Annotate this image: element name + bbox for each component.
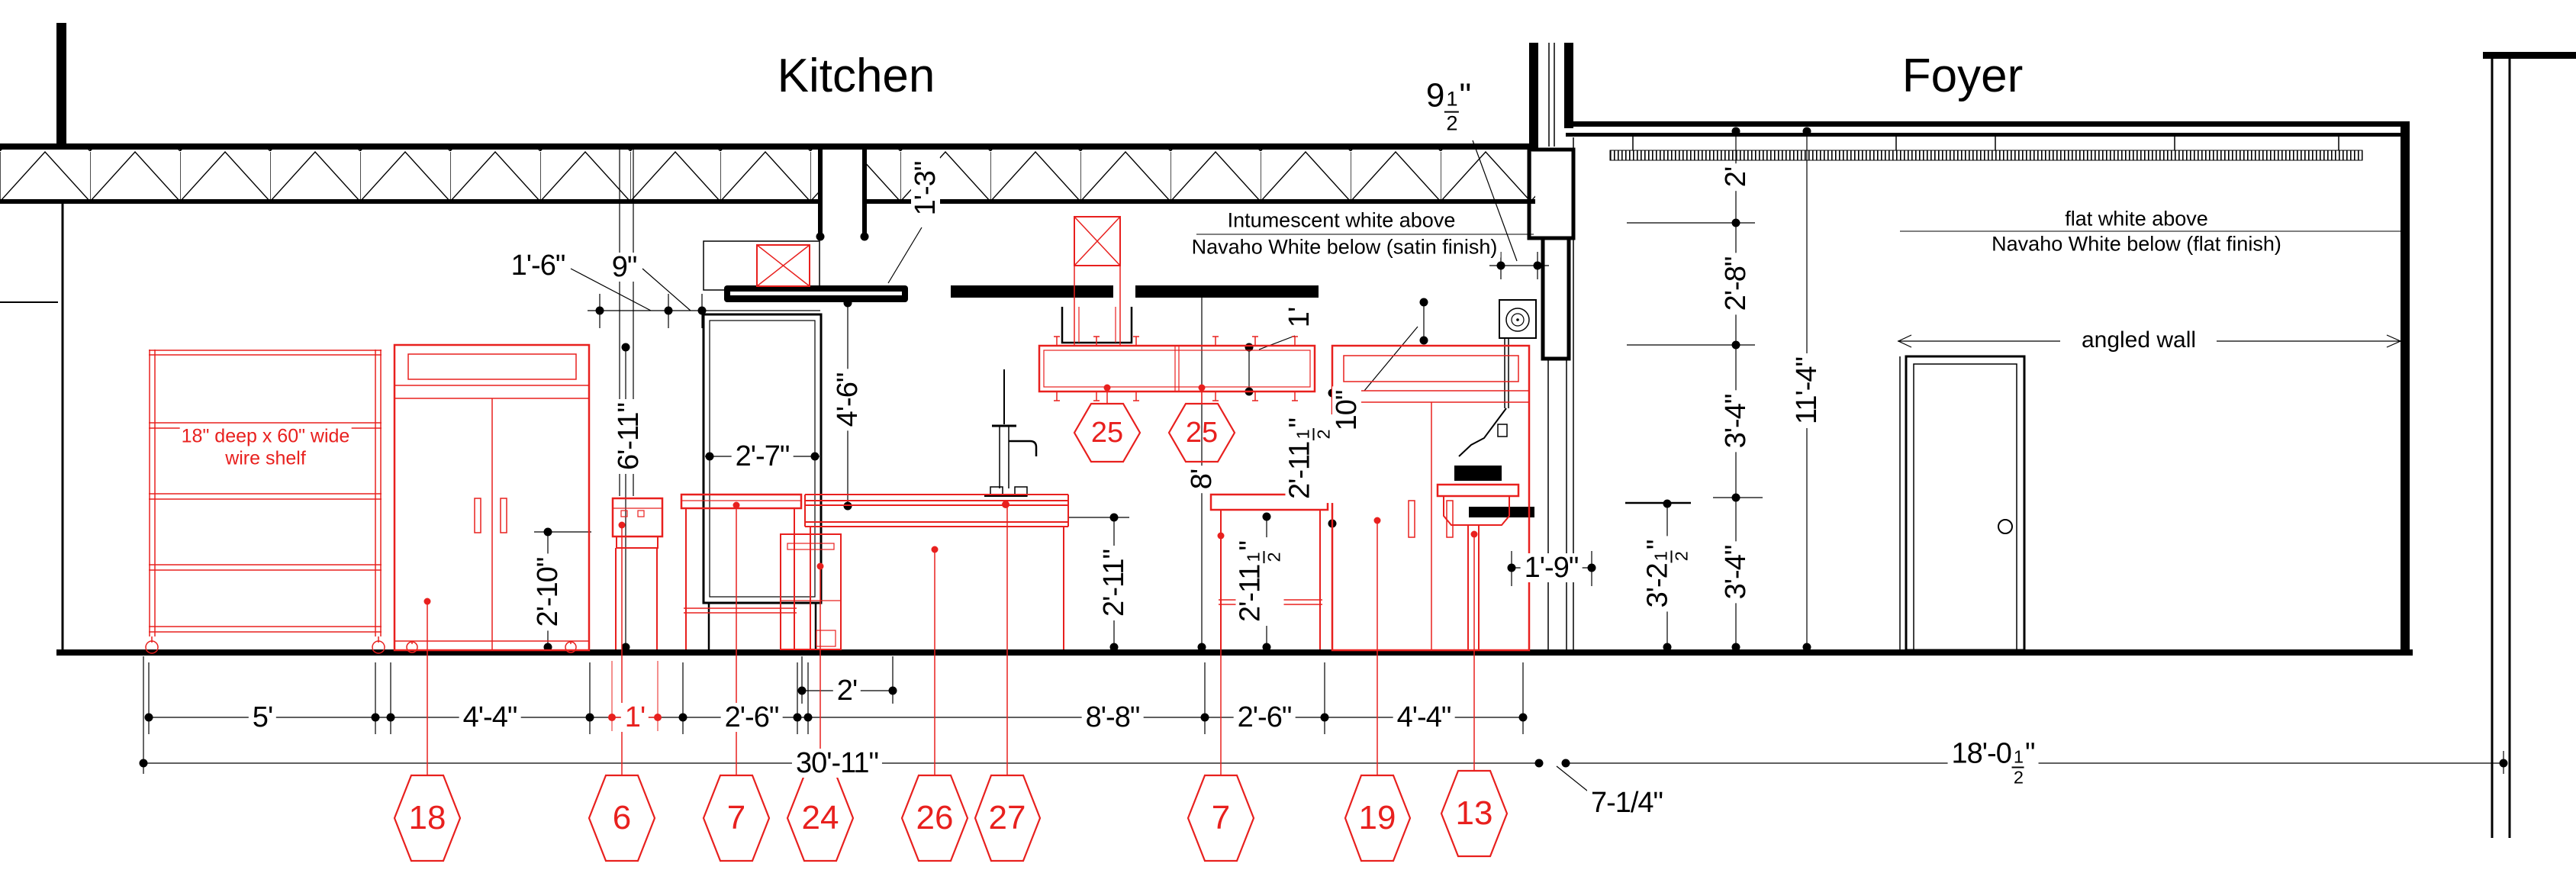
dim-5ft: 5' <box>249 703 276 732</box>
callout-24: 24 <box>802 801 839 835</box>
wire-shelf-note-line2: wire shelf <box>224 449 308 469</box>
dim-8ft: 8' <box>1187 466 1216 493</box>
dim-2-11: 2'-11" <box>1100 546 1129 620</box>
dim-2-11-half-lower: 2'-1112" <box>1236 537 1284 626</box>
callout-19: 19 <box>1359 801 1396 835</box>
dim-foyer-3-4-upper: 3'-4" <box>1721 391 1750 453</box>
callout-7-right: 7 <box>1212 801 1230 835</box>
foyer-finish-note-above: flat white above <box>2062 209 2211 230</box>
dim-4-4-left: 4'-4" <box>459 703 521 732</box>
dim-4-4-right: 4'-4" <box>1393 703 1455 732</box>
dim-1-3: 1'-3" <box>911 158 940 220</box>
dim-9: 9" <box>608 253 641 282</box>
wire-shelf <box>146 350 385 653</box>
dim-foyer-3-4-lower: 3'-4" <box>1721 542 1750 604</box>
kitchen-finish-note-below: Navaho White below (satin finish) <box>1189 237 1501 258</box>
foyer-finish-note-below: Navaho White below (flat finish) <box>1988 234 2285 255</box>
dim-2ft-tier: 2' <box>833 676 861 705</box>
exhaust-fan-icon <box>757 217 1120 346</box>
dim-1ft-red: 1' <box>621 703 649 732</box>
callout-13: 13 <box>1456 797 1493 830</box>
dim-foyer-11-4: 11'-4" <box>1792 353 1821 428</box>
callout-6: 6 <box>613 801 631 835</box>
dim-foyer-2ft: 2' <box>1721 163 1750 191</box>
wire-shelf-note-line1: 18" deep x 60" wide <box>180 427 352 446</box>
dim-3-2-half: 3'-212" <box>1644 536 1692 612</box>
callout-7-left: 7 <box>727 801 745 835</box>
dim-foyer-2-8: 2'-8" <box>1721 253 1750 315</box>
dim-9-half: 912" <box>1422 79 1474 135</box>
dim-18-0-half: 18'-012" <box>1948 739 2039 788</box>
callout-hexagons <box>394 404 1507 861</box>
dim-6-11: 6'-11" <box>614 399 643 474</box>
work-table-left <box>681 495 801 649</box>
dim-1-6: 1'-6" <box>507 251 569 280</box>
dim-1-9: 1'-9" <box>1521 553 1583 582</box>
pot-rack-shelf <box>1039 337 1315 401</box>
callout-27: 27 <box>989 801 1026 835</box>
dim-2-11-half-upper: 2'-1112" <box>1286 414 1334 503</box>
callout-18: 18 <box>409 801 446 835</box>
sink-counter <box>805 495 1068 649</box>
dim-30-11: 30'-11" <box>792 749 882 778</box>
hand-sink <box>1438 485 1518 649</box>
foyer-title: Foyer <box>1902 53 2023 100</box>
callout-26: 26 <box>916 801 954 835</box>
dim-7-quarter: 7-1/4" <box>1587 788 1666 817</box>
dim-2-6-right: 2'-6" <box>1234 703 1296 732</box>
dim-8-8: 8'-8" <box>1082 703 1144 732</box>
dim-2-6-left: 2'-6" <box>721 703 783 732</box>
angled-wall-label: angled wall <box>2079 329 2199 352</box>
dim-10in: 10" <box>1332 387 1361 435</box>
dim-2-10: 2'-10" <box>533 554 562 631</box>
dim-4-6: 4'-6" <box>833 369 862 431</box>
dim-1ft-rack: 1' <box>1285 304 1314 331</box>
callout-25-right: 25 <box>1186 418 1218 447</box>
dim-2-7: 2'-7" <box>732 442 794 471</box>
kitchen-title: Kitchen <box>778 53 935 100</box>
kitchen-finish-note-above: Intumescent white above <box>1225 211 1459 231</box>
callout-25-left: 25 <box>1091 418 1123 447</box>
range <box>613 498 662 649</box>
elevation-sheet: Kitchen Foyer Intumescent white above Na… <box>0 0 2576 870</box>
